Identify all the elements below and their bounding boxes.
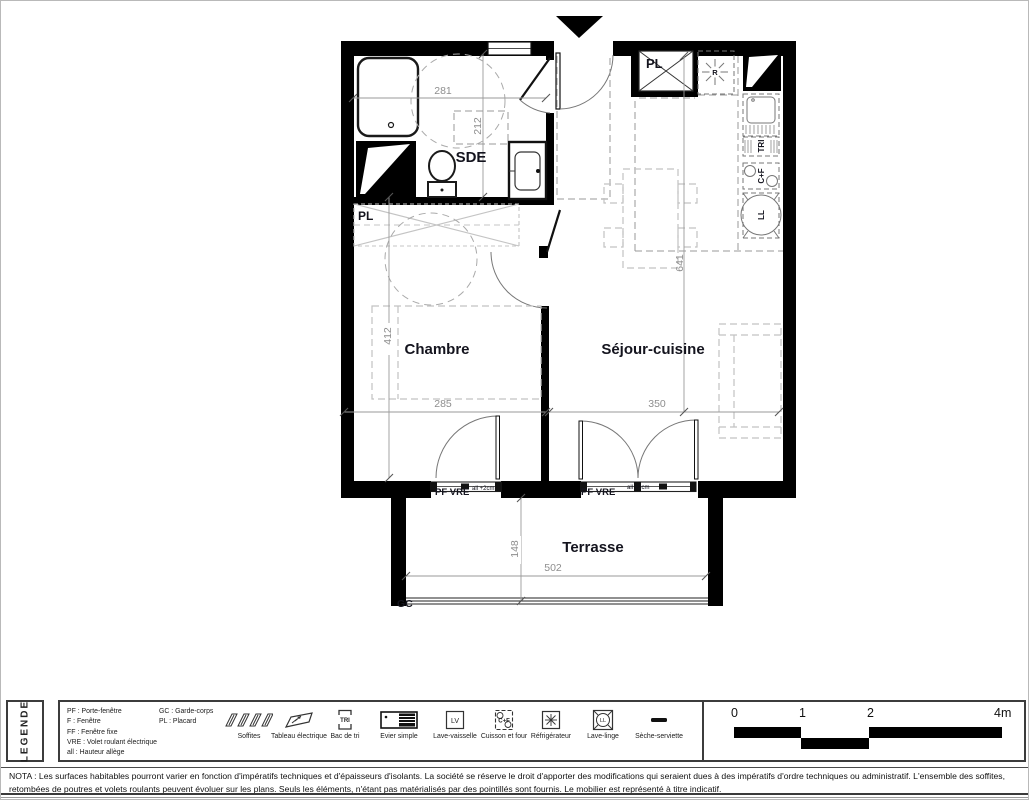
sofa (719, 324, 781, 438)
legend-title: LEGENDE (20, 700, 31, 762)
dim-terrasse-depth: 148 (509, 540, 521, 558)
tri-bin-legend-icon: TRI (336, 709, 354, 731)
floor-plan-page: 281 212 412 285 350 641 148 502 SDE Cham… (0, 0, 1029, 800)
legend-box: PF : Porte-fenêtre F : Fenêtre FF : Fenê… (58, 700, 1026, 762)
dim-chambre-width: 285 (434, 398, 452, 410)
electrical-panel-icon (284, 711, 314, 729)
label-cooktop: C+F (757, 168, 766, 183)
dim-sejour-width: 350 (648, 398, 666, 410)
plan-texts: 281 212 412 285 350 641 148 502 SDE Cham… (358, 56, 766, 610)
scale-segment-0-1 (734, 727, 801, 738)
legend-item-bac-de-tri: TRI Bac de tri (317, 708, 373, 742)
guardrail-lines (406, 598, 708, 604)
sde-door (520, 58, 550, 113)
legend-item-soffites: Soffites (221, 708, 277, 742)
dining-table (604, 169, 697, 268)
legend-title-box: LEGENDE (6, 700, 44, 762)
abbr-all: all : Hauteur allège (67, 748, 157, 758)
abbr-gc: GC : Garde-corps (159, 707, 213, 717)
room-label-sde: SDE (456, 149, 487, 166)
sink-legend-icon (380, 711, 418, 729)
placard-corridor (354, 204, 519, 246)
washer-legend-icon: LL (592, 709, 614, 731)
tri-icon-text: TRI (340, 718, 350, 724)
legend-caption: Bac de tri (317, 733, 373, 742)
sde-window (488, 42, 531, 55)
label-washer: LL (757, 210, 766, 220)
cooktop-legend-icon: C+F (494, 709, 514, 731)
scale-tick-0: 0 (731, 706, 738, 720)
dim-sejour-depth: 641 (674, 254, 686, 272)
towel-dryer-icon (650, 715, 668, 725)
label-guardrail: GC (397, 598, 413, 610)
nota-bottom-rule (1, 793, 1029, 795)
ll-icon-text: LL (600, 718, 606, 724)
lv-icon-text: LV (451, 718, 459, 725)
entry-door (556, 53, 613, 109)
abbr-ff: FF : Fenêtre fixe (67, 728, 157, 738)
scale-segment-2-4 (869, 727, 1002, 738)
legend-scale-divider (702, 702, 704, 760)
scale-tick-4m: 4m (994, 706, 1011, 720)
dishwasher-icon: LV (445, 710, 465, 730)
legend-caption: Lave-vaisselle (427, 733, 483, 742)
abbr-f: F : Fenêtre (67, 717, 157, 727)
legend-caption: Evier simple (371, 733, 427, 742)
dim-terrasse-width: 502 (544, 562, 562, 574)
shower-tray (358, 58, 418, 136)
vanity-sink (509, 142, 546, 199)
room-label-terrasse: Terrasse (562, 539, 623, 556)
entry-arrow-icon (556, 16, 603, 38)
pf-window-chambre (431, 416, 501, 492)
chambre-door (491, 210, 560, 308)
legend-abbreviations-col2: GC : Garde-corps PL : Placard (159, 707, 213, 728)
nota-top-rule (1, 767, 1029, 768)
legend-caption: Réfrigérateur (523, 733, 579, 742)
legend-item-seche-serviette: Sèche-serviette (631, 708, 687, 742)
nota-text: NOTA : Les surfaces habitables pourront … (9, 770, 1023, 796)
sink-icon (743, 94, 779, 136)
label-placard-entry: PL (646, 56, 663, 71)
legend-abbreviations-col1: PF : Porte-fenêtre F : Fenêtre FF : Fenê… (67, 707, 157, 759)
pf-window-sejour (579, 420, 698, 492)
legend-item-lave-vaisselle: LV Lave-vaisselle (427, 708, 483, 742)
label-fridge: R (712, 68, 718, 77)
scale-segment-1-2 (801, 738, 869, 749)
cf-icon-text: C+F (498, 719, 510, 725)
scale-tick-2: 2 (867, 706, 874, 720)
label-tri: TRI (757, 140, 766, 153)
label-pf-vre-sejour: PF VRE (581, 487, 615, 498)
room-label-sejour: Séjour-cuisine (601, 341, 704, 358)
legend-item-lave-linge: LL Lave-linge (575, 708, 631, 742)
room-label-chambre: Chambre (404, 341, 469, 358)
label-placard-corridor: PL (358, 209, 373, 223)
legend-caption: Lave-linge (575, 733, 631, 742)
label-allege-sejour: all +2cm (627, 485, 650, 491)
fridge-legend-icon (541, 710, 561, 730)
label-pf-vre-chambre: PF VRE (435, 487, 469, 498)
scale-tick-1: 1 (799, 706, 806, 720)
abbr-vre: VRE : Volet roulant électrique (67, 738, 157, 748)
dim-sde-width: 281 (434, 85, 452, 97)
abbr-pl: PL : Placard (159, 717, 213, 727)
legend-item-refrigerateur: Réfrigérateur (523, 708, 579, 742)
soffit-outlines (454, 56, 783, 251)
soffites-icon (225, 711, 273, 729)
floor-plan-drawing: 281 212 412 285 350 641 148 502 SDE Cham… (1, 1, 1029, 701)
toilet (428, 151, 456, 197)
dim-chambre-depth: 412 (382, 327, 394, 345)
label-allege-chambre: all +2cm (472, 486, 495, 492)
legend-caption: Sèche-serviette (631, 733, 687, 742)
legend-item-evier: Evier simple (371, 708, 427, 742)
abbr-pf: PF : Porte-fenêtre (67, 707, 157, 717)
page-bottom-rule (1, 797, 1029, 798)
legend-caption: Soffites (221, 733, 277, 742)
dim-sde-depth: 212 (472, 117, 484, 135)
